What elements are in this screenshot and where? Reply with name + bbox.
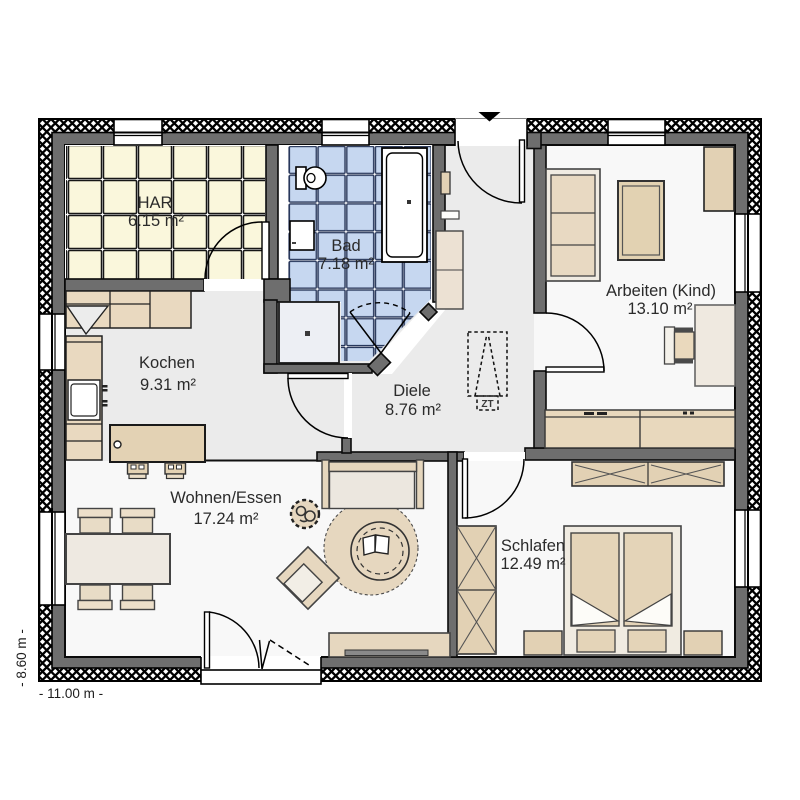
svg-text:13.10 m²: 13.10 m² xyxy=(627,300,693,318)
svg-text:12.49 m²: 12.49 m² xyxy=(500,555,566,573)
svg-text:ZT: ZT xyxy=(481,399,493,410)
svg-text:Diele: Diele xyxy=(393,382,431,400)
svg-text:Schlafen: Schlafen xyxy=(501,537,565,555)
svg-text:- 11.00 m -: - 11.00 m - xyxy=(39,686,103,701)
svg-text:9.31 m²: 9.31 m² xyxy=(140,376,196,394)
svg-text:Wohnen/Essen: Wohnen/Essen xyxy=(170,489,282,507)
svg-text:Bad: Bad xyxy=(331,237,360,255)
svg-text:17.24 m²: 17.24 m² xyxy=(193,510,259,528)
svg-text:- 8.60 m -: - 8.60 m - xyxy=(14,629,29,687)
svg-text:Kochen: Kochen xyxy=(139,354,195,372)
svg-text:Arbeiten (Kind): Arbeiten (Kind) xyxy=(606,282,716,300)
svg-text:7.18 m²: 7.18 m² xyxy=(318,255,374,273)
svg-text:HAR: HAR xyxy=(138,194,173,212)
svg-text:8.76 m²: 8.76 m² xyxy=(385,401,441,419)
svg-text:6.15 m²: 6.15 m² xyxy=(128,212,184,230)
